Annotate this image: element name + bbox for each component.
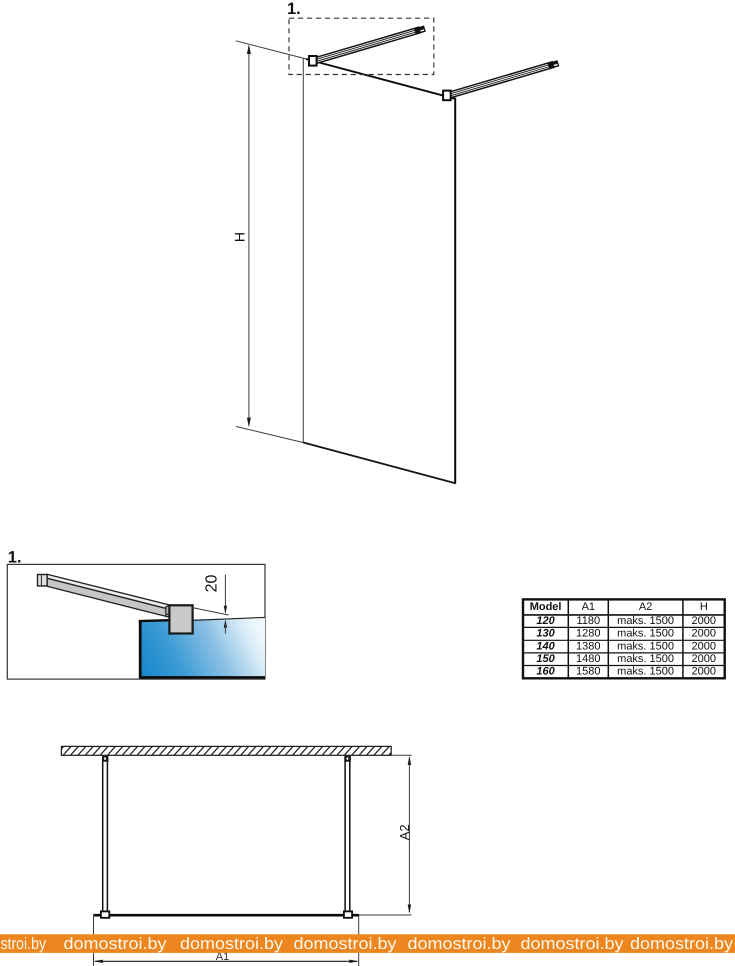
- svg-text:domostroi.by: domostroi.by: [521, 935, 625, 953]
- svg-text:1580: 1580: [576, 666, 600, 678]
- svg-text:1180: 1180: [576, 615, 600, 627]
- svg-text:1380: 1380: [576, 640, 600, 652]
- svg-text:160: 160: [536, 666, 555, 678]
- svg-text:H: H: [700, 601, 708, 613]
- svg-text:maks. 1500: maks. 1500: [617, 640, 674, 652]
- svg-text:A1: A1: [582, 601, 595, 613]
- svg-text:2000: 2000: [692, 666, 716, 678]
- svg-text:1.: 1.: [287, 0, 301, 18]
- svg-text:140: 140: [536, 640, 555, 652]
- svg-text:H: H: [232, 232, 248, 242]
- svg-text:2000: 2000: [692, 640, 716, 652]
- svg-text:domostroi.by: domostroi.by: [64, 935, 168, 953]
- svg-text:maks. 1500: maks. 1500: [617, 666, 674, 678]
- svg-text:maks. 1500: maks. 1500: [617, 615, 674, 627]
- svg-text:Model: Model: [530, 601, 562, 613]
- svg-text:120: 120: [536, 615, 555, 627]
- svg-text:20: 20: [204, 575, 221, 593]
- svg-text:domostroi.by: domostroi.by: [180, 935, 284, 953]
- svg-text:130: 130: [536, 628, 555, 640]
- svg-text:domostroi.by: domostroi.by: [630, 935, 734, 953]
- svg-text:2000: 2000: [692, 653, 716, 665]
- svg-text:maks. 1500: maks. 1500: [617, 628, 674, 640]
- svg-text:stroi.by: stroi.by: [1, 935, 47, 953]
- svg-text:1280: 1280: [576, 628, 600, 640]
- svg-text:150: 150: [536, 653, 555, 665]
- svg-text:domostroi.by: domostroi.by: [294, 935, 398, 953]
- svg-text:2000: 2000: [692, 615, 716, 627]
- svg-text:A2: A2: [639, 601, 652, 613]
- svg-text:maks. 1500: maks. 1500: [617, 653, 674, 665]
- svg-text:2000: 2000: [692, 628, 716, 640]
- svg-text:1480: 1480: [576, 653, 600, 665]
- svg-text:domostroi.by: domostroi.by: [408, 935, 512, 953]
- svg-text:A2: A2: [397, 824, 412, 840]
